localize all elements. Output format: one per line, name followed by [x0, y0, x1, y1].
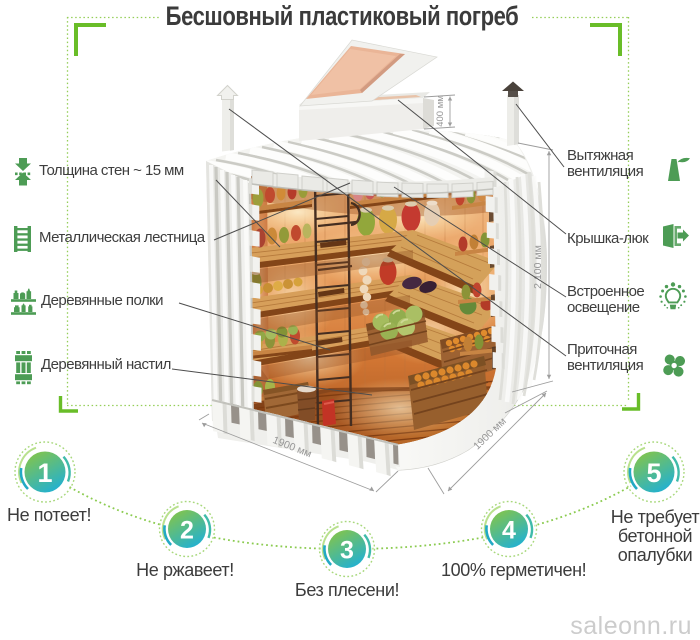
svg-text:4: 4: [502, 517, 516, 545]
svg-text:1: 1: [37, 458, 52, 488]
svg-text:2: 2: [180, 517, 194, 545]
svg-text:3: 3: [340, 537, 354, 565]
svg-text:5: 5: [646, 458, 661, 488]
svg-text:400 мм: 400 мм: [435, 95, 446, 127]
